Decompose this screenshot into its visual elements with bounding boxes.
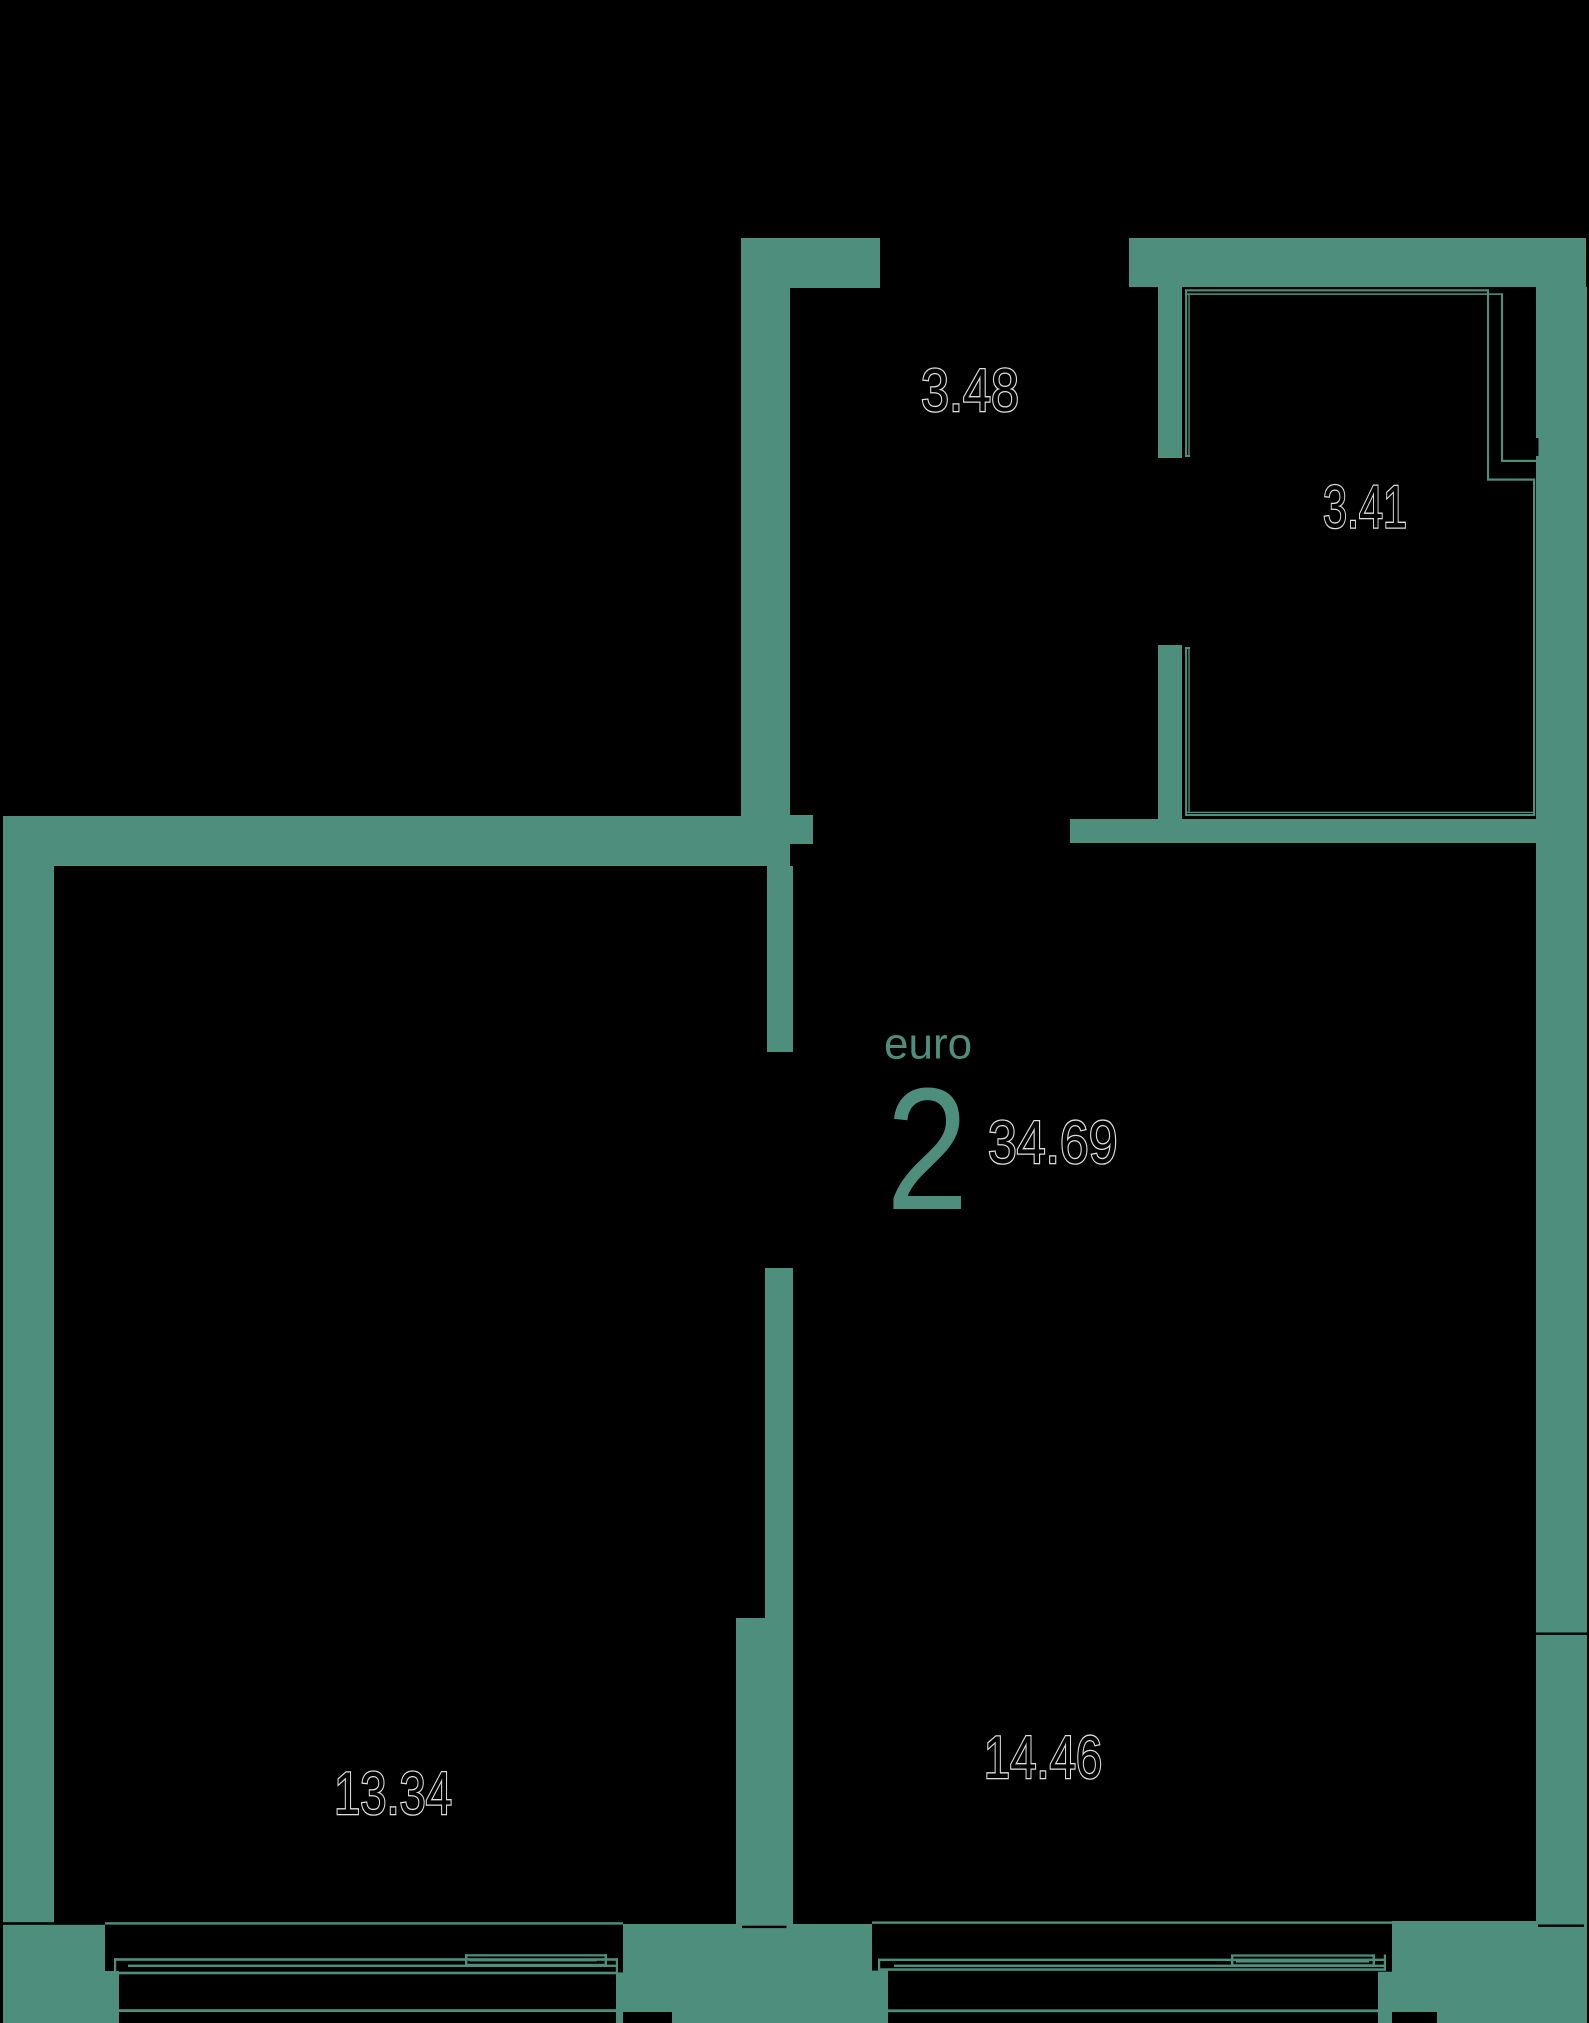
svg-text:2: 2: [886, 1053, 968, 1247]
svg-text:34.69: 34.69: [988, 1108, 1118, 1176]
svg-text:3.41: 3.41: [1323, 473, 1407, 541]
svg-text:14.46: 14.46: [984, 1723, 1103, 1791]
svg-text:13.34: 13.34: [334, 1759, 452, 1827]
svg-text:3.48: 3.48: [921, 356, 1019, 424]
